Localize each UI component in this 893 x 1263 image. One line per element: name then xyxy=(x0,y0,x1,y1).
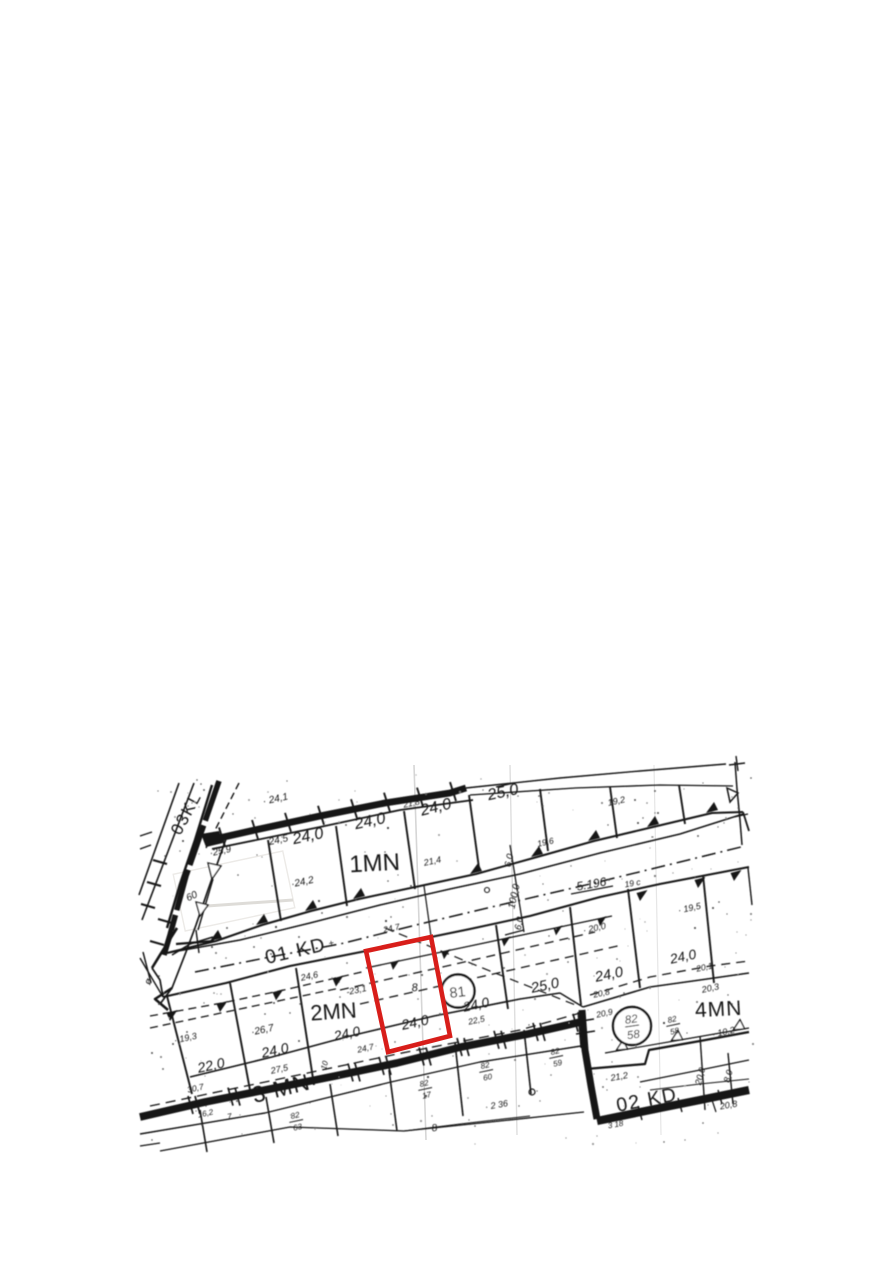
svg-text:82: 82 xyxy=(624,1013,639,1027)
svg-text:4MN: 4MN xyxy=(694,997,742,1022)
svg-text:58: 58 xyxy=(626,1028,641,1042)
svg-text:2MN: 2MN xyxy=(309,997,357,1025)
svg-text:1MN: 1MN xyxy=(349,849,401,879)
